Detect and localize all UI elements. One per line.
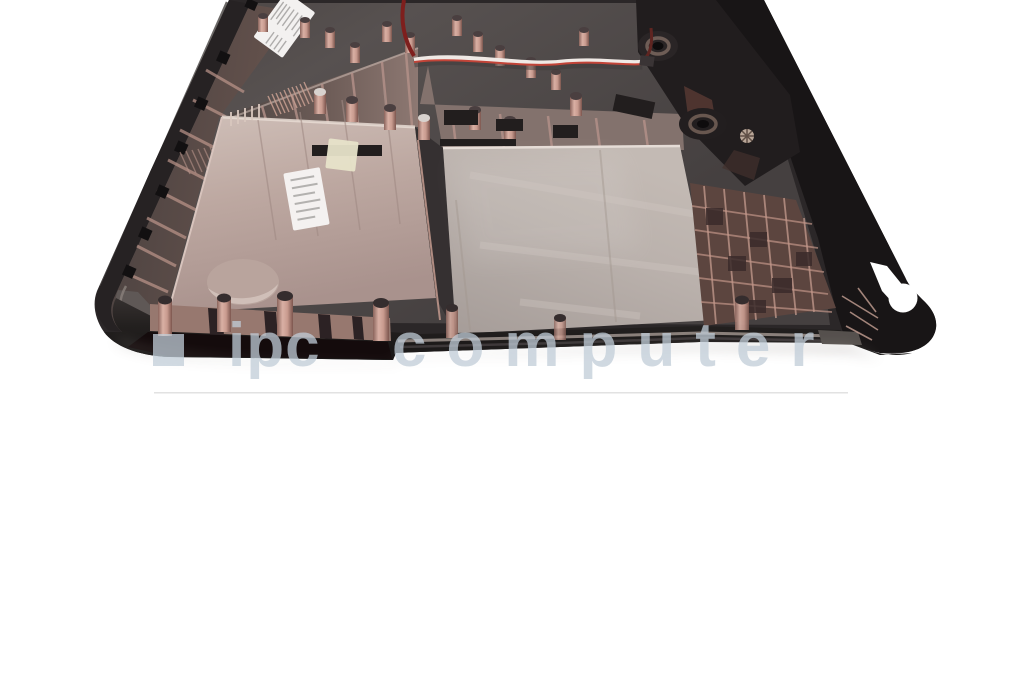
svg-text:ipc: ipc — [228, 311, 321, 380]
svg-text:computer: computer — [392, 311, 834, 380]
